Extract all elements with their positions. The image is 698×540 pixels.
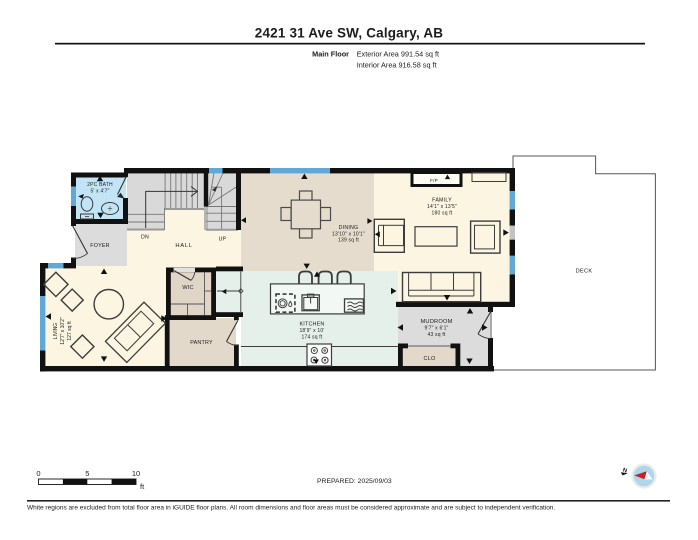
svg-text:FOYER: FOYER (90, 243, 110, 249)
svg-text:Main Floor: Main Floor (312, 50, 349, 59)
svg-text:0: 0 (36, 469, 40, 478)
svg-text:WIC: WIC (182, 285, 193, 291)
svg-text:2PC BATH: 2PC BATH (87, 182, 113, 188)
svg-text:12'7" x 10'2": 12'7" x 10'2" (60, 317, 66, 345)
svg-text:Exterior Area 991.54 sq ft: Exterior Area 991.54 sq ft (357, 50, 439, 59)
svg-text:139 sq ft: 139 sq ft (338, 238, 359, 244)
svg-text:PREPARED: 2025/09/03: PREPARED: 2025/09/03 (317, 478, 392, 485)
svg-text:174 sq ft: 174 sq ft (302, 335, 323, 341)
svg-text:FAMILY: FAMILY (432, 198, 452, 204)
svg-text:Interior Area 916.58 sq ft: Interior Area 916.58 sq ft (357, 61, 437, 70)
svg-text:43 sq ft: 43 sq ft (428, 332, 446, 338)
svg-text:HALL: HALL (175, 243, 192, 249)
svg-text:PANTRY: PANTRY (190, 340, 213, 346)
svg-text:DN: DN (141, 235, 149, 241)
svg-text:DINING: DINING (339, 225, 359, 231)
svg-text:127 sq ft: 127 sq ft (67, 321, 73, 341)
svg-text:180 sq ft: 180 sq ft (432, 211, 453, 217)
svg-text:CLO: CLO (424, 356, 436, 362)
svg-text:MUDROOM: MUDROOM (420, 319, 452, 325)
svg-text:LIVING: LIVING (53, 323, 59, 340)
svg-text:18'9" x 10': 18'9" x 10' (299, 328, 324, 334)
svg-text:5: 5 (85, 469, 89, 478)
svg-text:KITCHEN: KITCHEN (299, 322, 324, 328)
svg-text:9'7" x 6'1": 9'7" x 6'1" (424, 325, 448, 331)
svg-text:10: 10 (132, 469, 140, 478)
svg-text:14'1" x 13'5": 14'1" x 13'5" (427, 204, 457, 210)
svg-text:White regions are excluded fro: White regions are excluded from total fl… (27, 504, 555, 511)
svg-text:2421 31 Ave SW, Calgary, AB: 2421 31 Ave SW, Calgary, AB (255, 26, 444, 41)
svg-text:13'10" x 10'1": 13'10" x 10'1" (332, 231, 365, 237)
svg-text:F/P: F/P (430, 178, 438, 183)
svg-text:5' x 4'7": 5' x 4'7" (90, 189, 109, 195)
svg-text:DECK: DECK (576, 269, 593, 275)
svg-text:UP: UP (219, 237, 227, 243)
